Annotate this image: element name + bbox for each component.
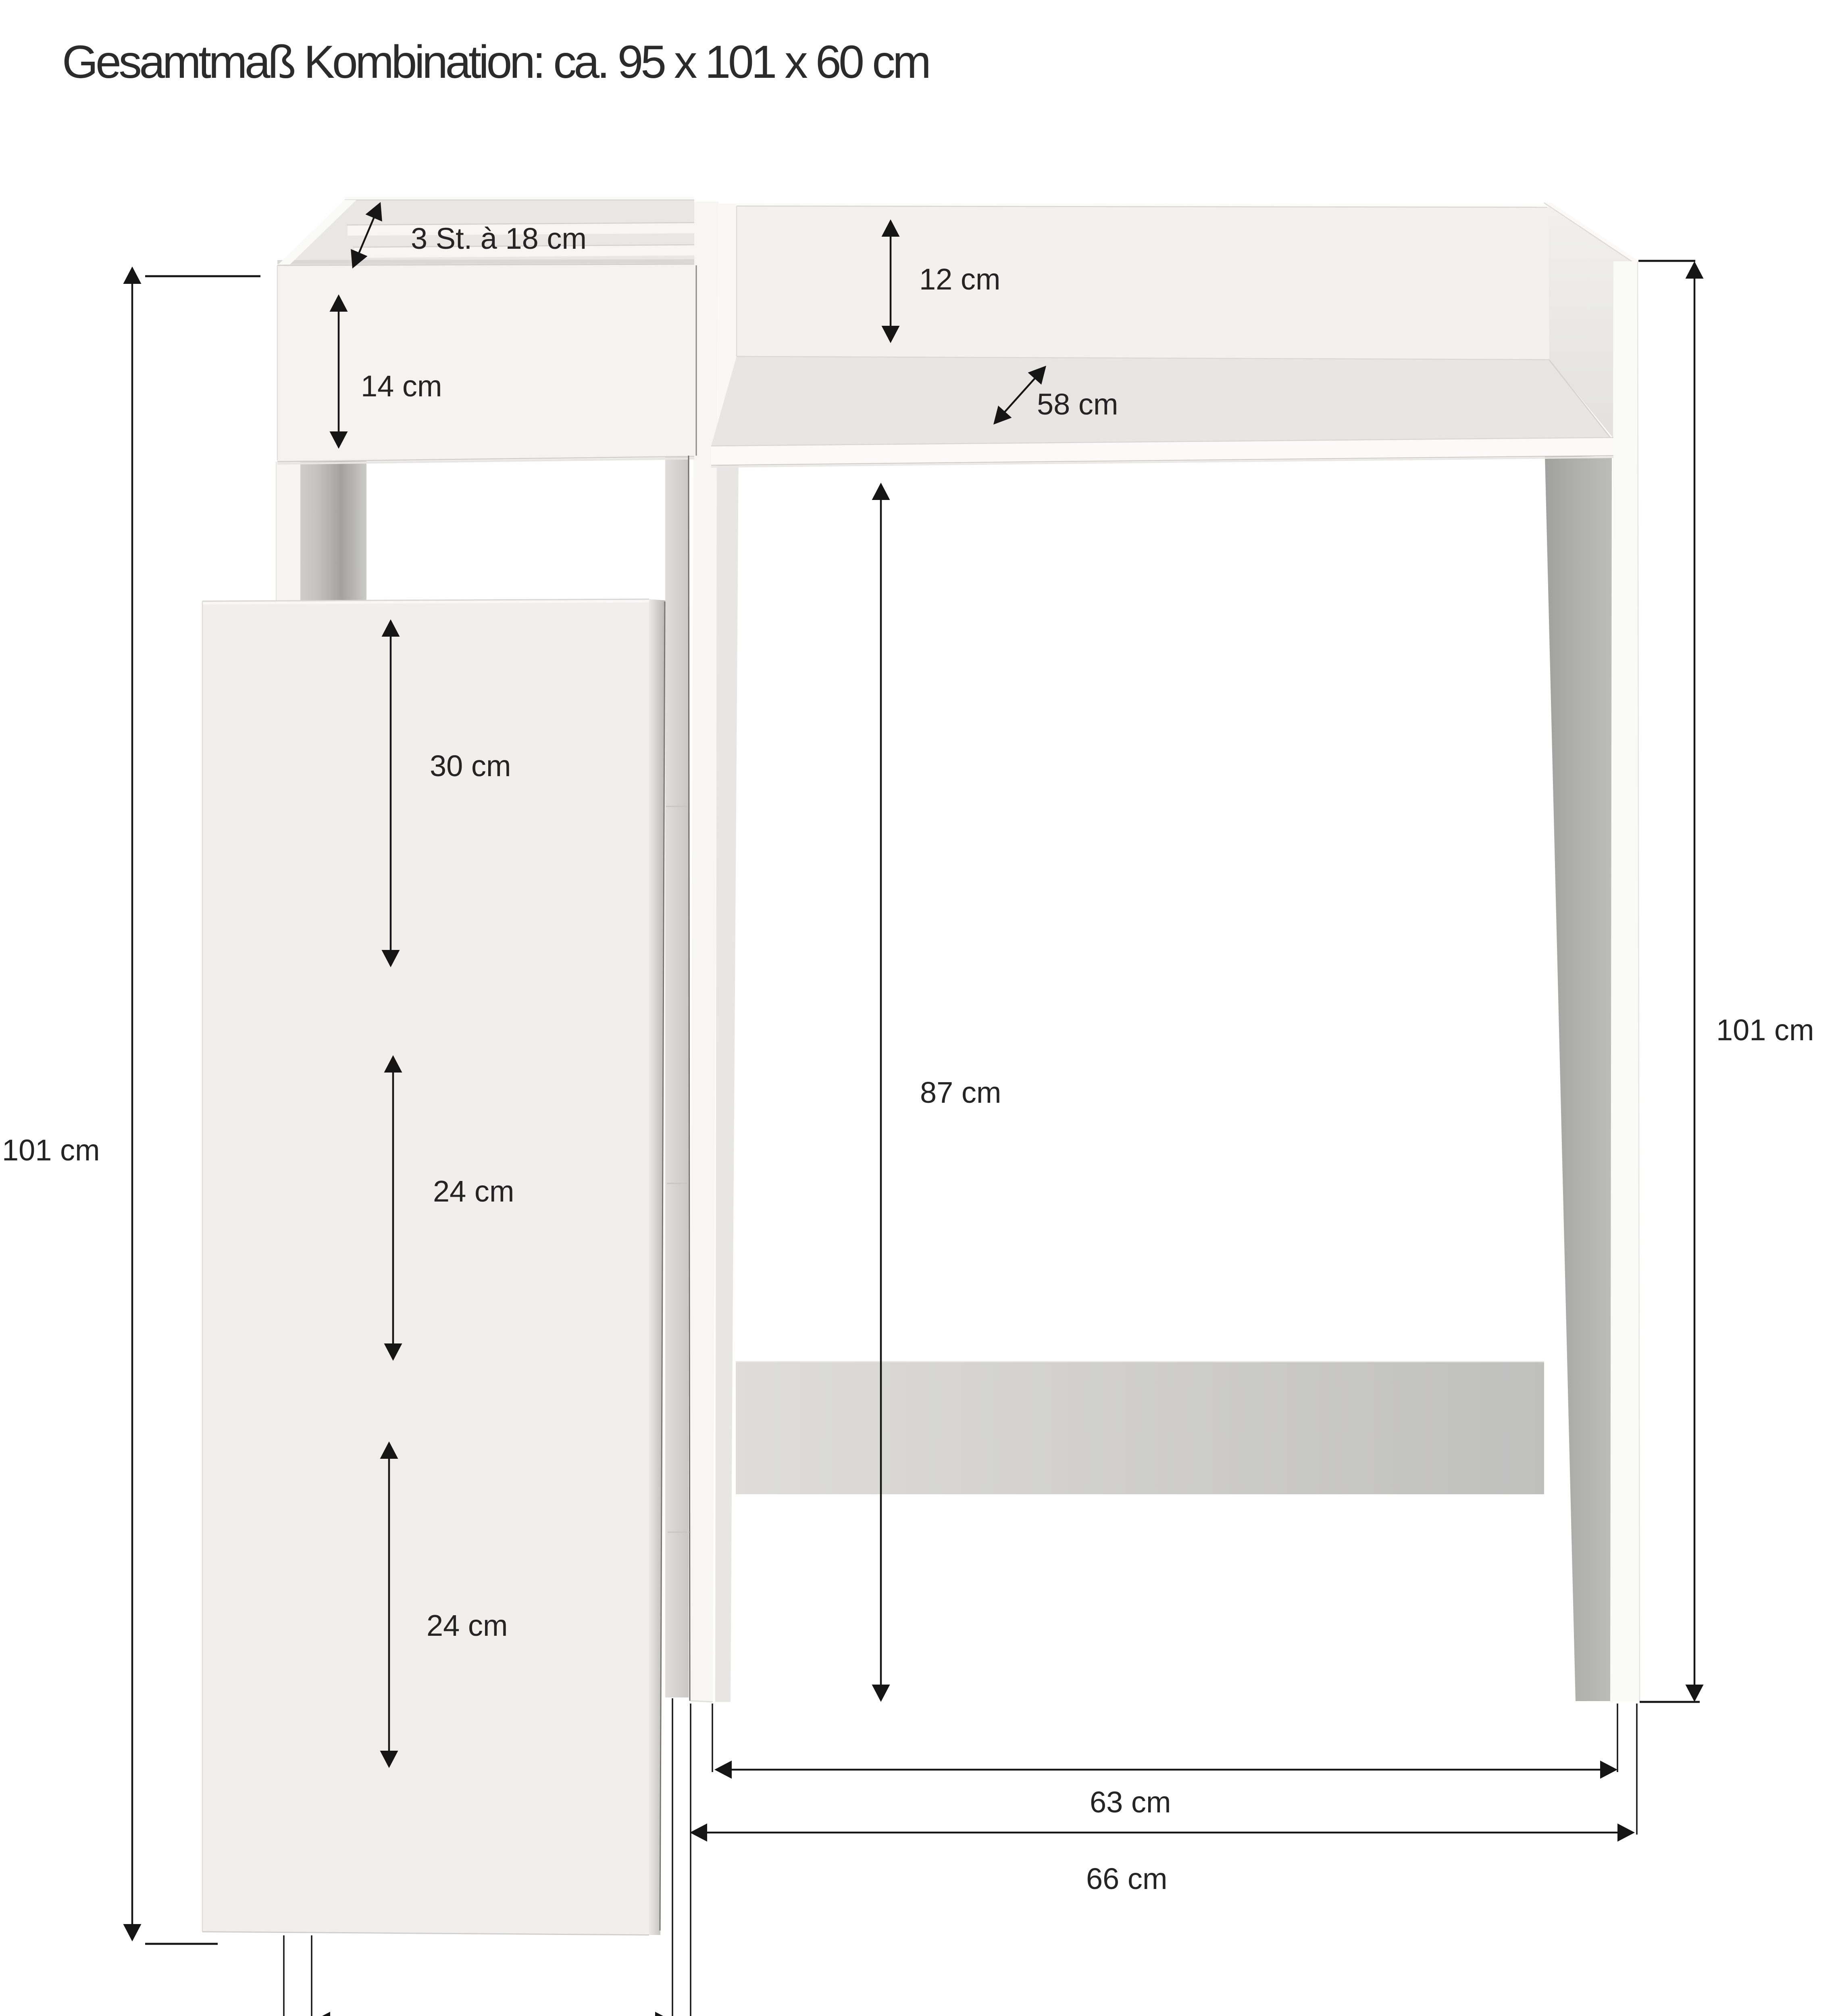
svg-text:12 cm: 12 cm: [919, 262, 1001, 296]
svg-text:101 cm: 101 cm: [2, 1133, 100, 1167]
svg-text:101 cm: 101 cm: [1716, 1013, 1814, 1047]
svg-text:24 cm: 24 cm: [433, 1175, 514, 1208]
svg-text:30 cm: 30 cm: [430, 749, 511, 783]
svg-text:Gesamtmaß Kombination: ca. 95: Gesamtmaß Kombination: ca. 95 x 101 x 60…: [62, 36, 928, 88]
svg-text:24 cm: 24 cm: [427, 1609, 508, 1642]
svg-text:87 cm: 87 cm: [920, 1076, 1001, 1109]
svg-text:58 cm: 58 cm: [1037, 387, 1118, 421]
svg-text:14 cm: 14 cm: [361, 369, 442, 403]
svg-text:3 St. à 18 cm: 3 St. à 18 cm: [411, 222, 587, 255]
svg-text:63 cm: 63 cm: [1090, 1785, 1171, 1819]
svg-text:66 cm: 66 cm: [1086, 1862, 1168, 1895]
